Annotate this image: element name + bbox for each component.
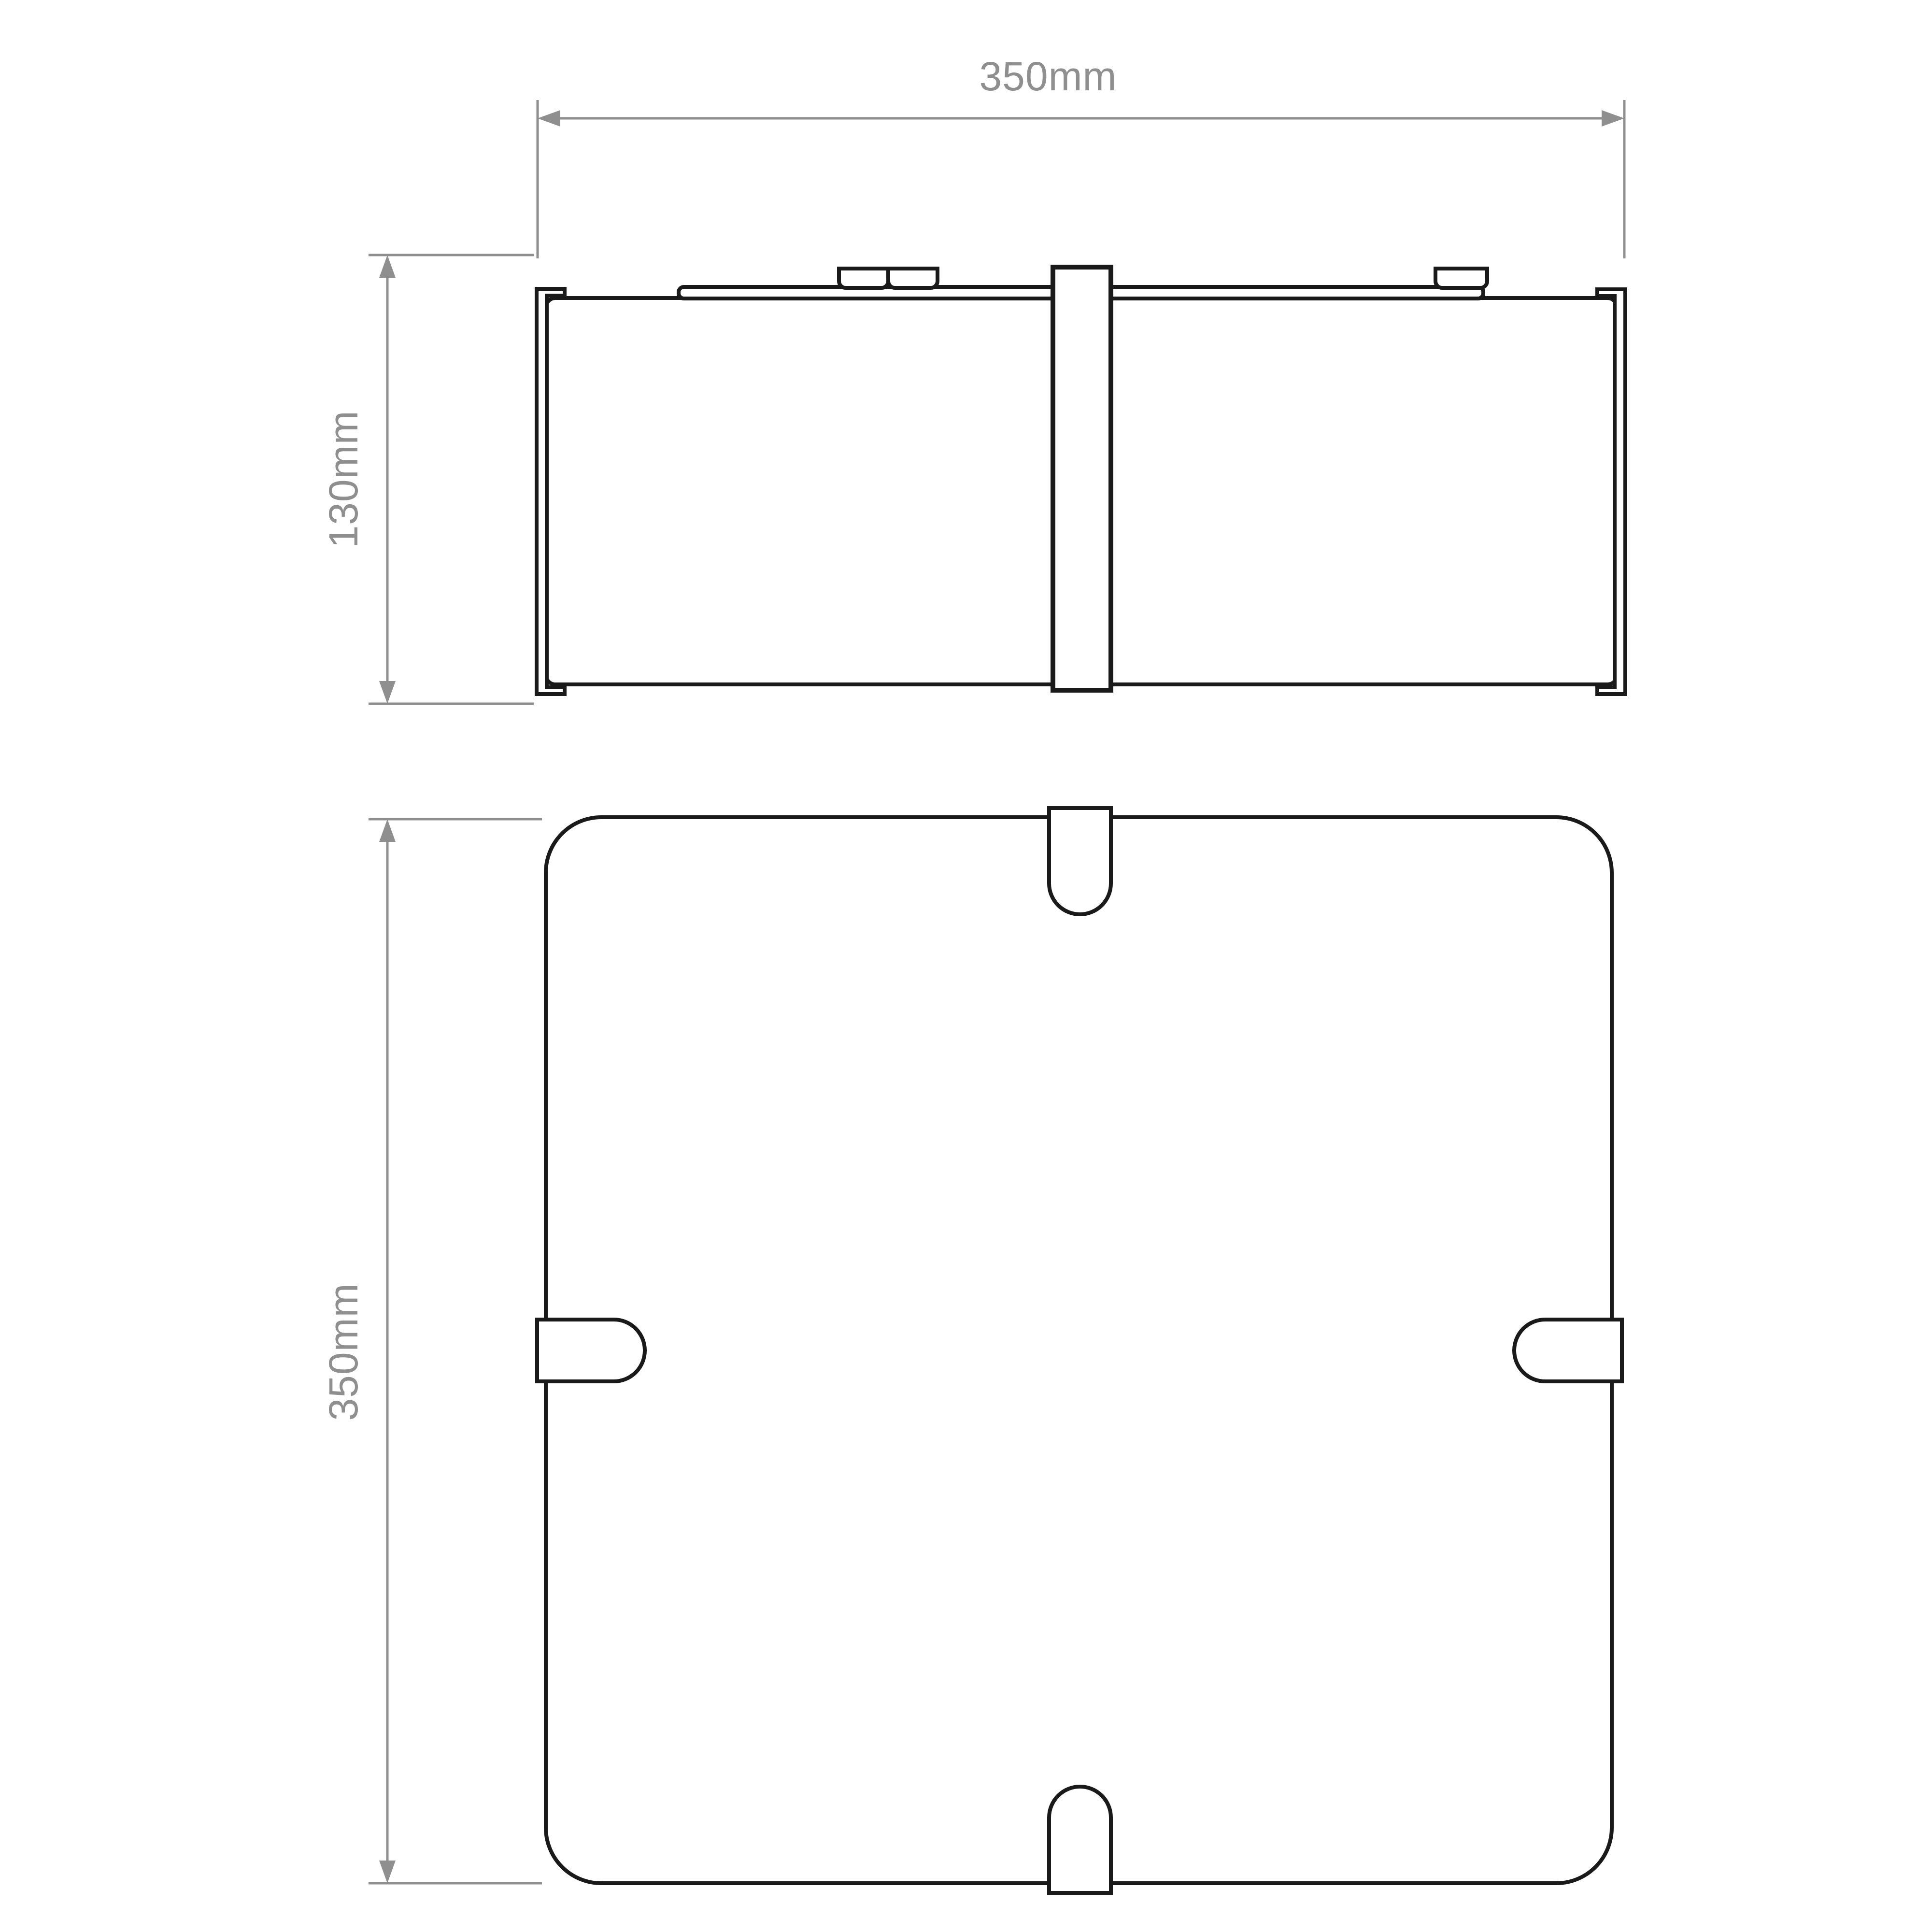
dimension-overall-width: 350mm	[538, 54, 1624, 258]
drawing-canvas: 350mm 130mm 350mm	[0, 0, 1932, 1932]
clip-tab-bottom	[1049, 1787, 1111, 1893]
arrowhead-up-icon	[379, 819, 396, 842]
dimension-label-width: 350mm	[979, 54, 1117, 99]
dimension-overall-height: 130mm	[321, 255, 534, 704]
dimension-label-depth: 350mm	[321, 1283, 366, 1421]
diffuser-panel	[546, 817, 1612, 1883]
arrowhead-left-icon	[538, 110, 560, 127]
clip-tab-top	[1049, 808, 1111, 914]
arrowhead-up-icon	[379, 255, 396, 278]
clip-tab-left	[537, 1320, 645, 1381]
dimension-label-height: 130mm	[321, 410, 366, 548]
arrowhead-right-icon	[1602, 110, 1624, 127]
retaining-clip	[888, 269, 938, 288]
side-elevation-view	[537, 267, 1625, 694]
arrowhead-down-icon	[379, 1861, 396, 1883]
retaining-clip	[1435, 269, 1487, 288]
centre-mounting-bracket	[1053, 267, 1111, 690]
arrowhead-down-icon	[379, 681, 396, 704]
clip-tab-right	[1514, 1320, 1622, 1381]
dimension-overall-depth: 350mm	[321, 819, 542, 1883]
retaining-clip	[839, 269, 888, 288]
technical-drawing: 350mm 130mm 350mm	[0, 0, 1932, 1932]
plan-view	[537, 808, 1622, 1893]
